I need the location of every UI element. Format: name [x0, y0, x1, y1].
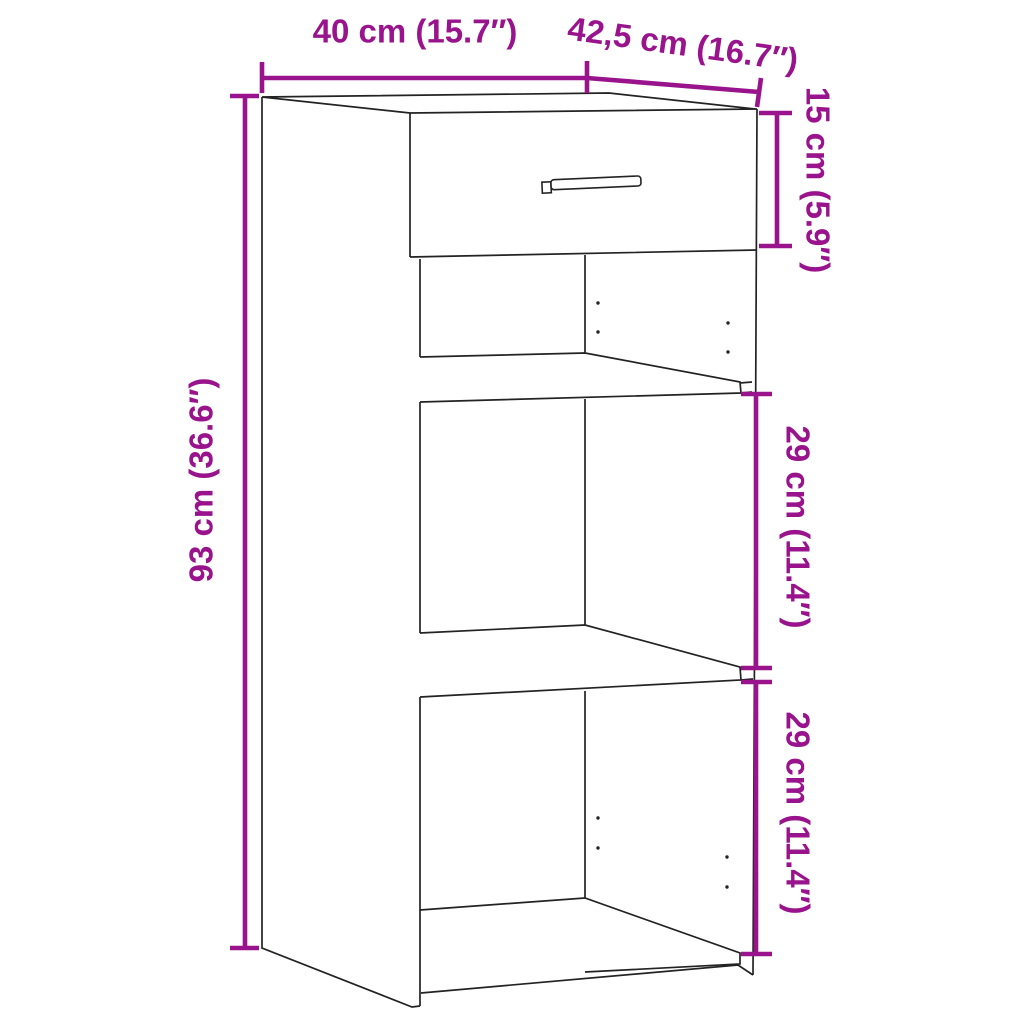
dimension-height-label: 93 cm (36.6″) [183, 378, 220, 583]
pin-hole [725, 855, 728, 858]
pin-hole [726, 321, 729, 324]
dimension-width-line [262, 61, 587, 93]
dimension-lower-compartment-line [741, 682, 772, 954]
cabinet-outer-frame [262, 97, 757, 1007]
bottom-panel [420, 898, 740, 972]
dimension-drawer-height-label: 15 cm (5.9″) [800, 87, 837, 273]
pin-hole [596, 330, 599, 333]
pin-hole [726, 350, 729, 353]
dimension-height: 93 cm (36.6″) [183, 96, 260, 948]
dimension-lower-compartment: 29 cm (11.4″) [741, 682, 817, 954]
cabinet-line-art [262, 93, 757, 1007]
drawer-handle [542, 176, 641, 193]
cabinet-top-outline [262, 93, 757, 113]
dimension-depth-label: 42,5 cm (16.7″) [565, 10, 800, 79]
dimension-depth-line [587, 78, 761, 107]
drawer-handle-bar [551, 176, 641, 190]
pin-hole [725, 885, 728, 888]
dimension-drawer-height: 15 cm (5.9″) [759, 87, 837, 273]
drawer-handle-mount [542, 182, 551, 193]
pin-hole [596, 846, 599, 849]
dimension-upper-compartment-label: 29 cm (11.4″) [780, 426, 817, 629]
dimension-width: 40 cm (15.7″) [262, 13, 587, 94]
shelf-upper [420, 353, 752, 402]
pin-hole [596, 816, 599, 819]
dimension-width-label: 40 cm (15.7″) [313, 13, 518, 50]
dimension-upper-compartment: 29 cm (11.4″) [741, 394, 817, 668]
shelf-lower [420, 625, 753, 697]
pin-hole [596, 301, 599, 304]
shelf-pin-holes [596, 301, 729, 888]
dimension-upper-compartment-line [741, 394, 772, 668]
dimension-lower-compartment-label: 29 cm (11.4″) [780, 712, 817, 915]
dimension-diagram: 40 cm (15.7″) 42,5 cm (16.7″) 15 cm (5.9… [0, 0, 1024, 1024]
dimension-height-line [230, 96, 259, 948]
dimension-drawer-height-line [759, 113, 792, 246]
